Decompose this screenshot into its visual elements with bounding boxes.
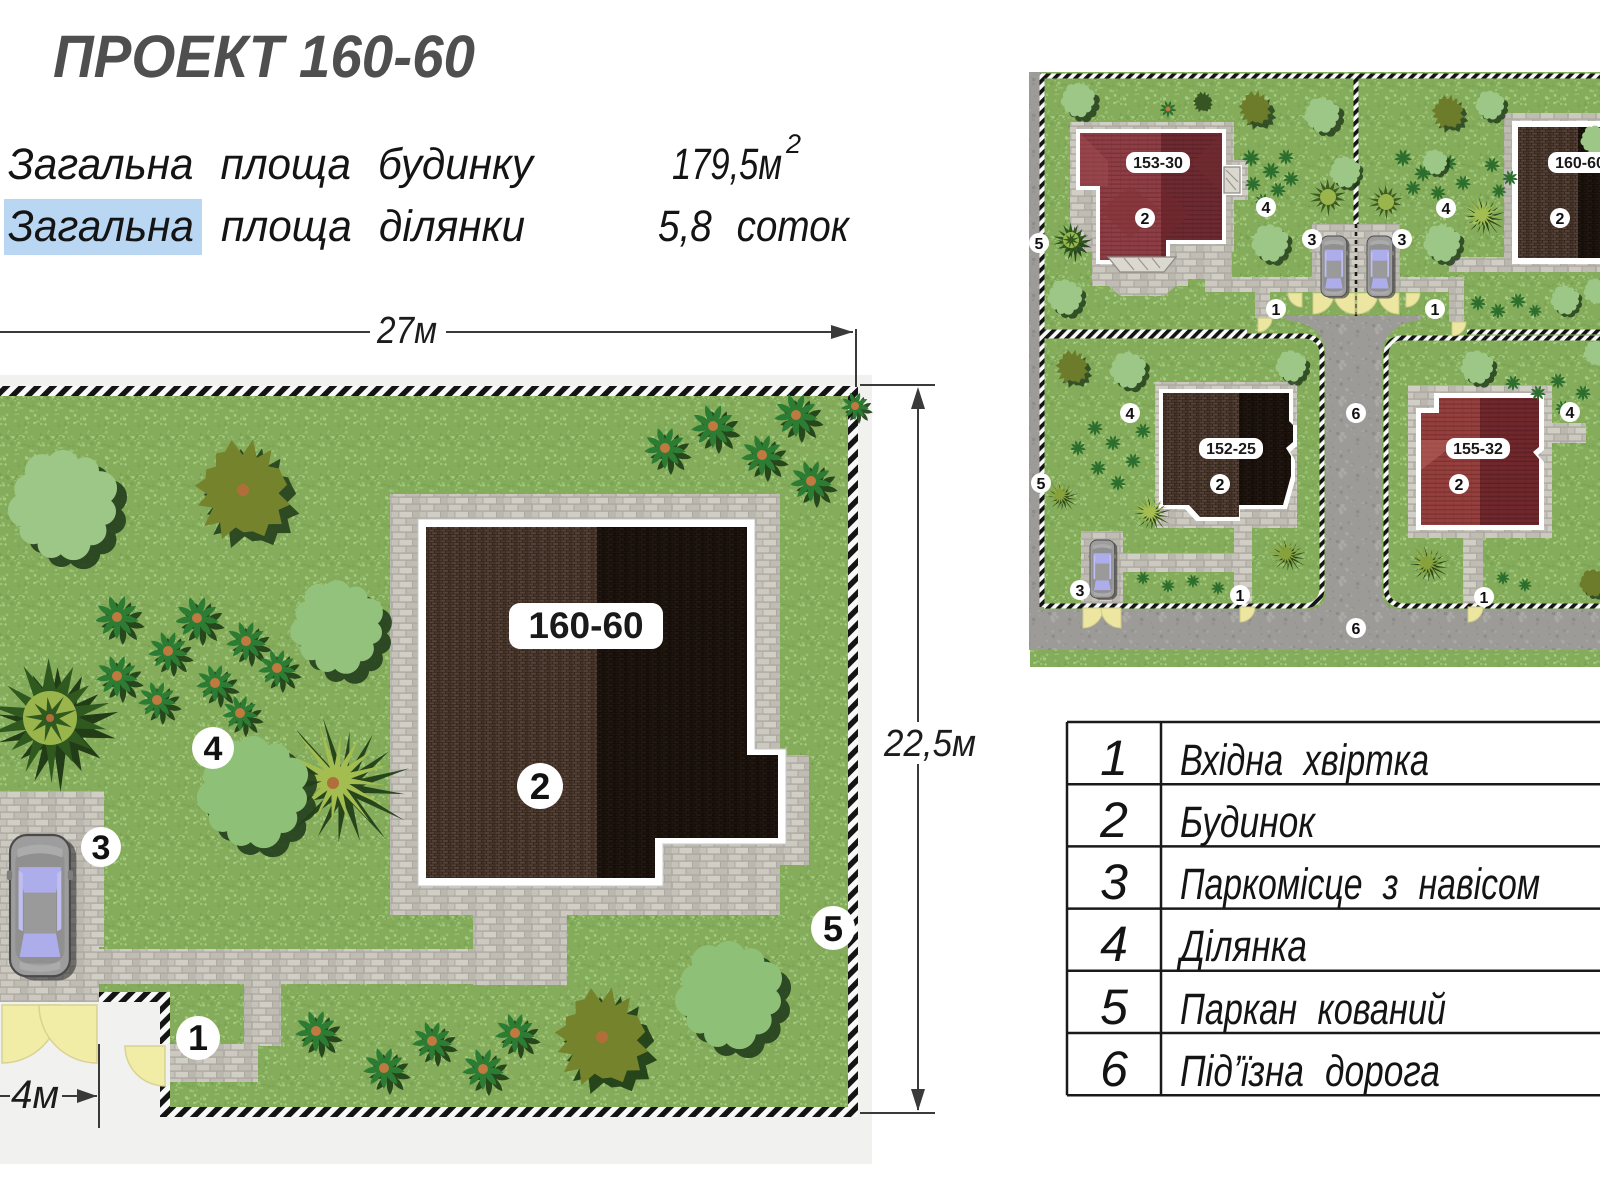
svg-text:Загальна площа ділянки: Загальна площа ділянки [8, 202, 525, 251]
svg-text:2: 2 [1141, 211, 1150, 228]
svg-text:4: 4 [1126, 406, 1135, 423]
svg-text:153-30: 153-30 [1133, 155, 1183, 172]
svg-text:Ділянка: Ділянка [1176, 922, 1307, 971]
svg-text:4м: 4м [11, 1073, 59, 1117]
svg-text:2: 2 [530, 766, 551, 807]
svg-text:Паркомісце з навісом: Паркомісце з навісом [1180, 860, 1540, 909]
svg-text:4: 4 [1100, 916, 1128, 972]
svg-text:5: 5 [1035, 236, 1044, 253]
svg-text:4: 4 [1566, 405, 1575, 422]
svg-text:3: 3 [1308, 232, 1317, 249]
svg-text:Під’їзна дорога: Під’їзна дорога [1180, 1047, 1440, 1096]
svg-text:4: 4 [1442, 201, 1451, 218]
svg-text:ПРОЕКТ 160-60: ПРОЕКТ 160-60 [53, 23, 475, 90]
svg-text:1: 1 [1272, 302, 1281, 319]
svg-text:1: 1 [1431, 302, 1440, 319]
svg-text:1: 1 [188, 1017, 208, 1058]
svg-text:Будинок: Будинок [1180, 798, 1317, 847]
svg-text:1: 1 [1100, 730, 1128, 786]
svg-text:2: 2 [785, 129, 801, 159]
svg-text:22,5м: 22,5м [883, 723, 976, 765]
svg-text:160-60: 160-60 [528, 605, 643, 646]
svg-text:3: 3 [1076, 583, 1085, 600]
svg-text:5: 5 [1037, 476, 1046, 493]
svg-text:152-25: 152-25 [1206, 441, 1256, 458]
svg-text:5: 5 [823, 908, 843, 949]
svg-text:3: 3 [92, 829, 111, 867]
svg-text:1: 1 [1236, 588, 1245, 605]
svg-text:2: 2 [1216, 477, 1225, 494]
svg-text:3: 3 [1398, 232, 1407, 249]
svg-text:2: 2 [1556, 211, 1565, 228]
svg-text:4: 4 [1262, 200, 1271, 217]
svg-text:6: 6 [1352, 406, 1361, 423]
svg-text:4: 4 [204, 730, 223, 768]
svg-text:6: 6 [1100, 1041, 1128, 1097]
svg-text:1: 1 [1480, 590, 1489, 607]
svg-text:2: 2 [1455, 477, 1464, 494]
svg-text:27м: 27м [376, 310, 437, 352]
svg-text:3: 3 [1100, 854, 1128, 910]
svg-text:Вхідна хвіртка: Вхідна хвіртка [1180, 736, 1429, 785]
svg-text:155-32: 155-32 [1453, 441, 1503, 458]
svg-text:Загальна площа будинку: Загальна площа будинку [8, 140, 536, 189]
svg-text:5: 5 [1100, 979, 1128, 1035]
svg-text:179,5м: 179,5м [672, 140, 782, 189]
svg-text:2: 2 [1099, 792, 1128, 848]
svg-text:160-60: 160-60 [1555, 155, 1600, 172]
svg-text:5,8 соток: 5,8 соток [658, 202, 851, 251]
svg-text:6: 6 [1352, 621, 1361, 638]
svg-text:Паркан кований: Паркан кований [1180, 985, 1446, 1034]
